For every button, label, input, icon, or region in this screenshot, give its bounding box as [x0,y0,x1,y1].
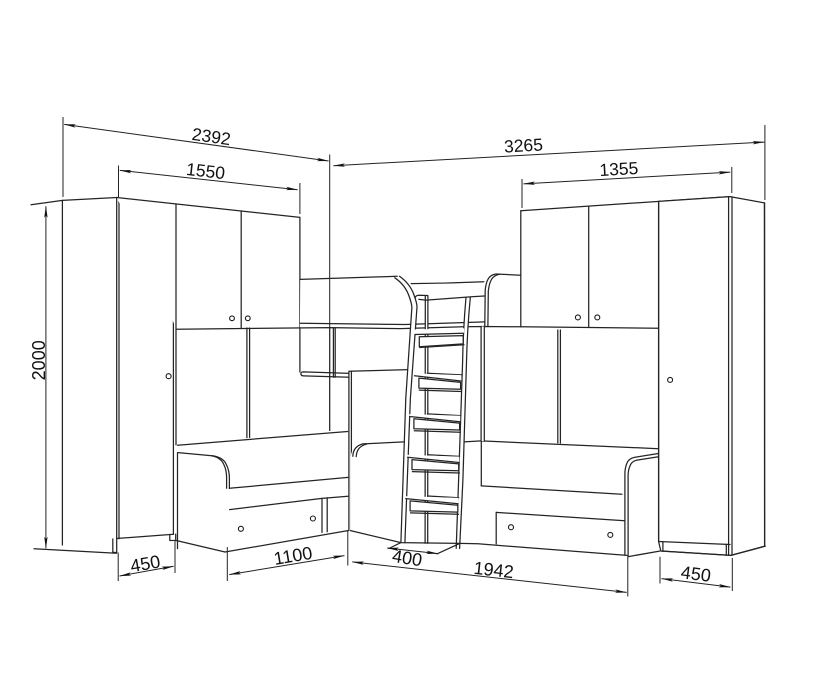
svg-text:3265: 3265 [503,134,543,156]
svg-text:1550: 1550 [185,159,226,183]
svg-text:2000: 2000 [29,340,49,380]
svg-text:1355: 1355 [599,158,639,180]
svg-text:450: 450 [680,562,712,586]
